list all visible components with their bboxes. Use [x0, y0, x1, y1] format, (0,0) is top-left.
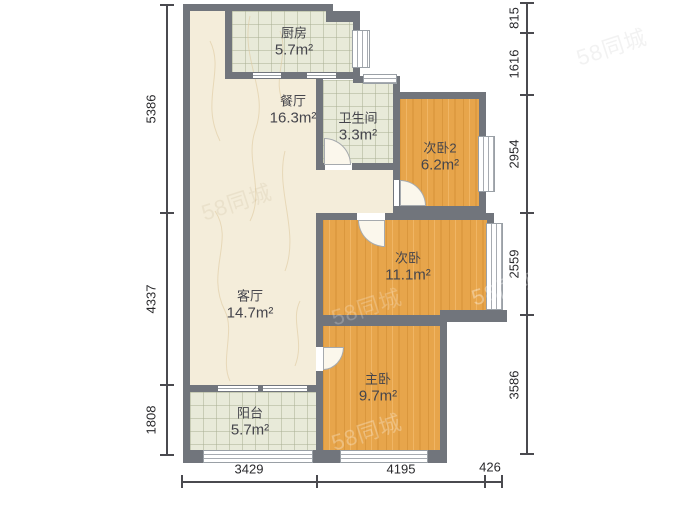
wall-segment — [316, 213, 323, 457]
wall-segment — [393, 206, 486, 213]
room-name: 阳台 — [231, 405, 269, 422]
kitchen-sliding-opening — [307, 73, 336, 78]
dim-label-bottom-2: 426 — [479, 460, 501, 475]
dim-label-left-1: 4337 — [144, 285, 159, 314]
dimension-line-left — [166, 5, 168, 455]
bedroom2-window — [478, 136, 495, 192]
room-label-balcony: 阳台 5.7m² — [231, 405, 269, 440]
wall-segment — [326, 4, 333, 22]
dim-label-right-1: 1616 — [507, 50, 522, 79]
door-opening — [316, 347, 323, 371]
dimension-line-bottom — [182, 481, 503, 483]
room-label-master: 主卧 9.7m² — [359, 371, 397, 406]
wall-segment — [316, 76, 323, 170]
wall-segment — [440, 315, 447, 463]
dimension-tick — [160, 4, 174, 6]
room-label-living: 客厅 14.7m² — [227, 288, 274, 323]
room-area: 14.7m² — [227, 305, 274, 323]
dim-label-left-0: 5386 — [144, 95, 159, 124]
room-label-bedroom2: 次卧2 6.2m² — [421, 140, 459, 175]
room-name: 主卧 — [359, 371, 397, 388]
dimension-tick — [484, 475, 486, 488]
dim-label-bottom-1: 4195 — [387, 462, 416, 477]
kitchen-window — [352, 30, 370, 68]
room-label-bathroom: 卫生间 3.3m² — [338, 110, 377, 145]
dimension-tick — [316, 475, 318, 488]
room-label-kitchen: 厨房 5.7m² — [275, 25, 313, 60]
dimension-tick — [501, 475, 503, 488]
room-name: 卫生间 — [338, 110, 377, 127]
dimension-tick — [160, 384, 174, 386]
wall-segment — [225, 72, 360, 79]
dimension-tick — [520, 453, 534, 455]
room-area: 11.1m² — [385, 267, 431, 285]
dim-label-right-4: 3586 — [507, 371, 522, 400]
room-area: 5.7m² — [275, 42, 313, 60]
wall-segment — [393, 92, 486, 99]
room-area: 6.2m² — [421, 157, 459, 175]
room-area: 3.3m² — [338, 127, 377, 145]
kitchen-sliding-opening — [253, 73, 281, 78]
bathroom-window — [363, 74, 397, 84]
door-opening — [357, 213, 385, 220]
dim-label-bottom-0: 3429 — [235, 462, 264, 477]
room-area: 16.3m² — [270, 110, 317, 128]
wall-segment — [225, 11, 232, 79]
door-opening — [394, 180, 399, 206]
wall-segment — [316, 315, 447, 326]
room-name: 次卧2 — [421, 140, 459, 157]
room-name: 次卧 — [385, 250, 431, 267]
dimension-tick — [520, 212, 534, 214]
balcony-sliding-door — [263, 386, 307, 391]
marble-veins — [190, 11, 322, 385]
bedroom-window — [486, 223, 503, 310]
room-area: 5.7m² — [231, 422, 269, 440]
room-label-dining: 餐厅 16.3m² — [270, 93, 317, 128]
hallway-floor — [310, 170, 398, 213]
balcony-sliding-door — [218, 386, 258, 391]
room-area: 9.7m² — [359, 388, 397, 406]
room-name: 厨房 — [275, 25, 313, 42]
dimension-tick — [520, 314, 534, 316]
room-name: 餐厅 — [270, 93, 317, 110]
dimension-tick — [160, 454, 174, 456]
floor-plan: 厨房 5.7m² 餐厅 16.3m² 卫生间 3.3m² 次卧2 6.2m² 次… — [0, 0, 696, 522]
room-name: 客厅 — [227, 288, 274, 305]
dim-label-right-2: 2954 — [507, 140, 522, 169]
wall-segment — [183, 4, 333, 11]
dimension-tick — [520, 32, 534, 34]
dim-label-left-2: 1808 — [144, 406, 159, 435]
room-label-bedroom: 次卧 11.1m² — [385, 250, 431, 285]
dimension-tick — [520, 2, 534, 4]
dimension-tick — [181, 475, 183, 488]
dimension-tick — [520, 94, 534, 96]
wall-segment — [183, 4, 190, 463]
wall-segment — [316, 213, 494, 220]
dim-label-right-0: 815 — [507, 7, 522, 29]
watermark: 58同城 — [572, 20, 651, 73]
dimension-line-right — [526, 3, 528, 455]
dim-label-right-3: 2559 — [507, 250, 522, 279]
wall-segment — [440, 310, 507, 322]
dimension-tick — [160, 212, 174, 214]
